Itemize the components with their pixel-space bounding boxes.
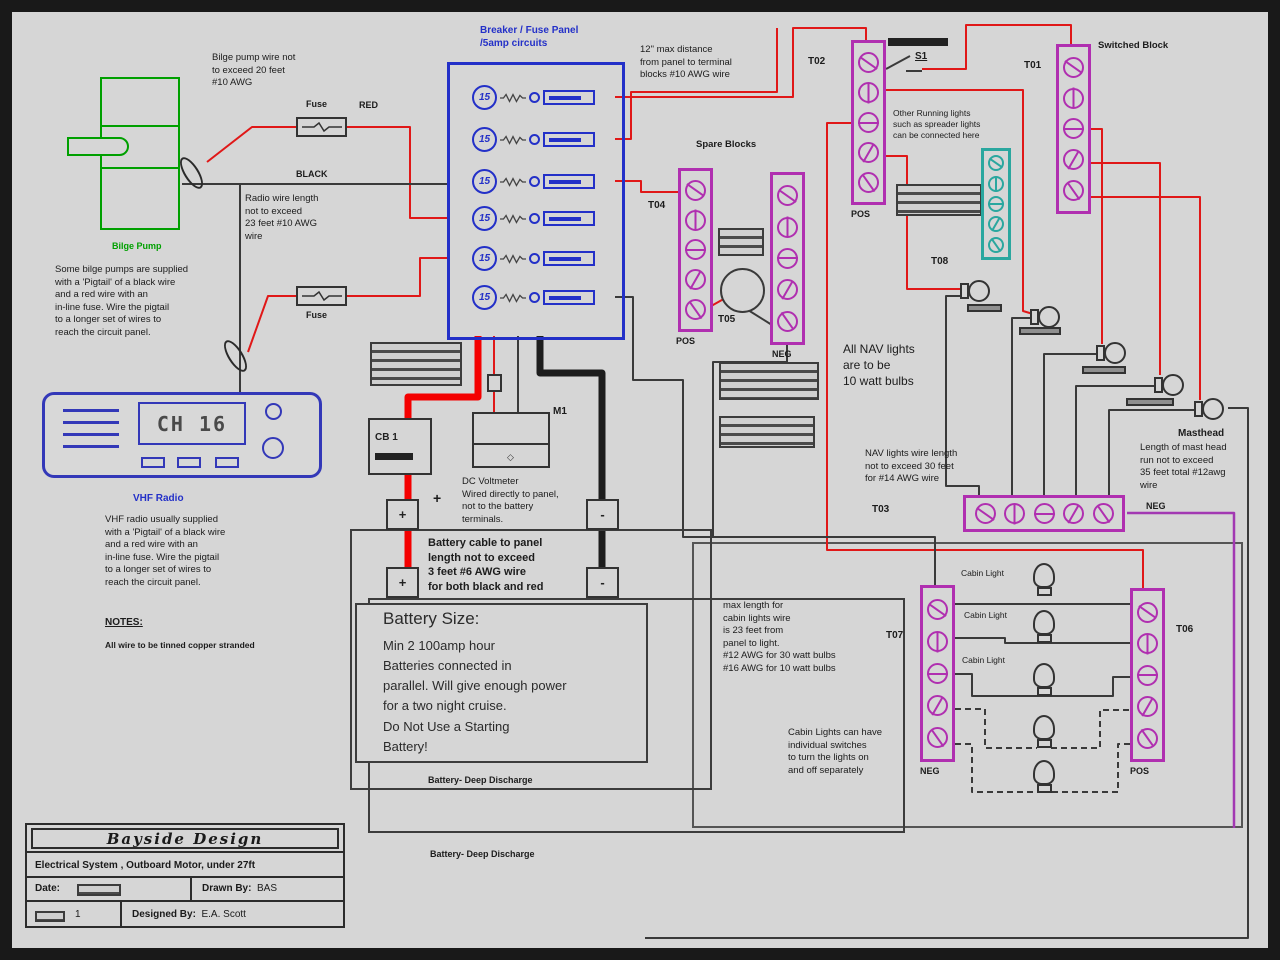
breaker-amp-rating: 15 — [472, 246, 497, 271]
terminal-screw-icon — [1063, 503, 1084, 524]
radio-button-icon[interactable] — [215, 457, 239, 468]
battery-pos-terminal: + — [386, 567, 419, 598]
cabin-light-label: Cabin Light — [962, 655, 1005, 666]
terminal-screw-icon — [927, 727, 948, 748]
breaker-coil-icon — [500, 92, 526, 104]
terminal-block-t02 — [851, 40, 886, 205]
breaker-coil-icon — [500, 134, 526, 146]
nav-light-plate-icon — [1082, 366, 1126, 374]
battery-pos-terminal: + — [386, 499, 419, 530]
terminal-screw-icon — [1063, 180, 1084, 201]
terminal-screw-icon — [1137, 602, 1158, 623]
t05-label: T05 — [718, 314, 735, 325]
panel-title: Breaker / Fuse Panel /5amp circuits — [480, 24, 578, 50]
terminal-block-t01 — [1056, 44, 1091, 214]
terminal-screw-icon — [1063, 118, 1084, 139]
terminal-screw-icon — [988, 216, 1004, 232]
breaker-circuit-row: 15 — [472, 168, 622, 195]
panel-distance-note: 12" max distance from panel to terminal … — [640, 44, 732, 82]
meter-divider — [474, 443, 548, 445]
panel-fuse-icon — [543, 290, 595, 305]
masthead-title: Masthead — [1178, 428, 1224, 439]
terminal-block-t07 — [920, 585, 955, 762]
compass-dial-icon — [720, 268, 765, 313]
terminal-screw-icon — [777, 248, 798, 269]
t04-label: T04 — [648, 200, 665, 211]
terminal-block-t06 — [1130, 588, 1165, 762]
voltmeter-m1: ◇ — [472, 412, 550, 468]
terminal-screw-icon — [988, 196, 1004, 212]
breaker-circuit-row: 15 — [472, 205, 622, 232]
pump-divider — [102, 125, 178, 127]
terminal-screw-icon — [858, 52, 879, 73]
fuse-top-label: Fuse — [306, 99, 327, 109]
radio-button-icon[interactable] — [177, 457, 201, 468]
drawn-by-cell: Drawn By: BAS — [190, 878, 347, 900]
breaker-coil-icon — [500, 292, 526, 304]
terminal-screw-icon — [927, 599, 948, 620]
connector-bundle-icon — [896, 184, 982, 216]
voltmeter-note: DC Voltmeter Wired directly to panel, no… — [462, 476, 559, 526]
cb1-bar-icon — [375, 453, 413, 460]
terminal-screw-icon — [685, 299, 706, 320]
breaker-circuit-row: 15 — [472, 126, 622, 153]
fuse-element-icon — [302, 290, 342, 302]
terminal-screw-icon — [1063, 57, 1084, 78]
breaker-amp-rating: 15 — [472, 285, 497, 310]
fuse-icon — [296, 286, 347, 306]
battery-cable-note: Battery cable to panel length not to exc… — [428, 536, 544, 594]
cabin-light-label: Cabin Light — [961, 568, 1004, 579]
pump-divider — [102, 167, 178, 169]
terminal-screw-icon — [858, 172, 879, 193]
terminal-screw-icon — [927, 663, 948, 684]
nav-wire-note: NAV lights wire length not to exceed 30 … — [865, 448, 957, 486]
spare-blocks-label: Spare Blocks — [696, 139, 756, 150]
cabin-wire-note: max length for cabin lights wire is 23 f… — [723, 600, 836, 675]
masthead-note: Length of mast head run not to exceed 35… — [1140, 442, 1227, 492]
terminal-block-t08 — [981, 148, 1011, 260]
terminal-screw-icon — [1137, 665, 1158, 686]
breaker-amp-rating: 15 — [472, 127, 497, 152]
red-wire-label: RED — [359, 100, 378, 110]
terminal-screw-icon — [777, 311, 798, 332]
fuse-icon — [296, 117, 347, 137]
nav-light-bulb-icon — [1096, 342, 1126, 364]
terminal-node-icon — [529, 92, 540, 103]
terminal-block-t04 — [678, 168, 713, 332]
nav-light-bulb-icon — [960, 280, 990, 302]
drawn-by-value: BAS — [257, 883, 277, 894]
date-field — [77, 884, 121, 896]
fuse-element-icon — [302, 121, 342, 133]
notes-body: All wire to be tinned copper stranded — [105, 640, 255, 651]
t06-label: T06 — [1176, 624, 1193, 635]
terminal-screw-icon — [858, 112, 879, 133]
terminal-screw-icon — [1004, 503, 1025, 524]
breaker-coil-icon — [500, 253, 526, 265]
t01-label: T01 — [1024, 60, 1041, 71]
panel-fuse-icon — [543, 174, 595, 189]
radio-wire-note: Radio wire length not to exceed 23 feet … — [245, 193, 318, 243]
cabin-light-bulb-icon — [1031, 760, 1057, 793]
radio-channel-display: CH 16 — [138, 402, 246, 445]
t02-pos-label: POS — [851, 209, 870, 219]
nav-light-plate-icon — [1126, 398, 1174, 406]
designed-by-cell: Designed By: E.A. Scott — [120, 902, 347, 928]
terminal-node-icon — [529, 253, 540, 264]
m1-label: M1 — [553, 406, 567, 417]
terminal-screw-icon — [975, 503, 996, 524]
breaker-coil-icon — [500, 176, 526, 188]
vhf-radio-graphic: CH 16 — [42, 392, 322, 478]
t07-neg-label: NEG — [920, 766, 940, 776]
nav-light-plate-icon — [1019, 327, 1061, 335]
terminal-screw-icon — [777, 217, 798, 238]
cabin-light-bulb-icon — [1031, 715, 1057, 748]
nav-light-plate-icon — [967, 304, 1002, 312]
bilge-wire-note: Bilge pump wire not to exceed 20 feet #1… — [212, 52, 295, 90]
cabin-switches-note: Cabin Lights can have individual switche… — [788, 727, 882, 777]
battery-type-label: Battery- Deep Discharge — [428, 775, 533, 785]
sheet-icon — [35, 911, 65, 922]
panel-fuse-icon — [543, 132, 595, 147]
cabin-light-bulb-icon — [1031, 610, 1057, 643]
nav-light-bulb-icon — [1030, 306, 1060, 328]
battery-type-label: Battery- Deep Discharge — [430, 849, 535, 859]
vhf-pigtail-note: VHF radio usually supplied with a 'Pigta… — [105, 514, 225, 589]
sheet-number: 1 — [75, 909, 81, 920]
terminal-block-spare-neg — [770, 172, 805, 345]
radio-knob-icon[interactable] — [265, 403, 282, 420]
date-label: Date: — [35, 883, 60, 894]
terminal-block-t03 — [963, 495, 1125, 532]
t08-label: T08 — [931, 256, 948, 267]
breaker-amp-rating: 15 — [472, 169, 497, 194]
designed-by-label: Designed By: — [132, 909, 196, 920]
speaker-line-icon — [63, 421, 119, 424]
terminal-screw-icon — [1137, 633, 1158, 654]
company-name: Bayside Design — [31, 828, 339, 849]
connector-bundle-icon — [719, 362, 819, 400]
breaker-circuit-row: 15 — [472, 245, 622, 272]
terminal-screw-icon — [685, 239, 706, 260]
meter-diamond-icon: ◇ — [507, 452, 514, 463]
cabin-light-bulb-icon — [1031, 563, 1057, 596]
terminal-screw-icon — [858, 142, 879, 163]
designed-by-value: E.A. Scott — [201, 909, 245, 920]
terminal-screw-icon — [988, 237, 1004, 253]
t04-pos-label: POS — [676, 336, 695, 346]
speaker-line-icon — [63, 445, 119, 448]
terminal-screw-icon — [927, 631, 948, 652]
terminal-screw-icon — [777, 279, 798, 300]
cabin-light-bulb-icon — [1031, 663, 1057, 696]
breaker-circuit-row: 15 — [472, 84, 622, 111]
terminal-node-icon — [529, 292, 540, 303]
connector-bundle-icon — [719, 416, 815, 448]
title-block: Bayside Design Electrical System , Outbo… — [25, 823, 345, 928]
terminal-screw-icon — [927, 695, 948, 716]
panel-fuse-icon — [543, 90, 595, 105]
terminal-node-icon — [529, 213, 540, 224]
bilge-pump-outlet — [67, 137, 129, 156]
radio-button-icon[interactable] — [141, 457, 165, 468]
s1-label: S1 — [915, 51, 927, 62]
circuit-breaker-cb1: CB 1 — [368, 418, 432, 475]
plus-sign: + — [433, 490, 441, 506]
switched-block-label: Switched Block — [1098, 40, 1168, 51]
terminal-screw-icon — [1137, 696, 1158, 717]
speaker-line-icon — [63, 433, 119, 436]
terminal-screw-icon — [1063, 149, 1084, 170]
terminal-screw-icon — [1034, 503, 1055, 524]
t03-neg-label: NEG — [1146, 501, 1166, 511]
running-lights-note: Other Running lights such as spreader li… — [893, 108, 980, 142]
nav-light-bulb-icon — [1154, 374, 1184, 396]
nav-bulbs-note: All NAV lights are to be 10 watt bulbs — [843, 342, 915, 389]
t07-label: T07 — [886, 630, 903, 641]
terminal-screw-icon — [685, 269, 706, 290]
cb1-label: CB 1 — [375, 432, 398, 443]
terminal-screw-icon — [1137, 728, 1158, 749]
breaker-coil-icon — [500, 213, 526, 225]
speaker-line-icon — [63, 409, 119, 412]
breaker-amp-rating: 15 — [472, 206, 497, 231]
battery-neg-terminal: - — [586, 567, 619, 598]
terminal-screw-icon — [777, 185, 798, 206]
drawn-by-label: Drawn By: — [202, 883, 251, 894]
terminal-screw-icon — [685, 180, 706, 201]
battery-size-title: Battery Size: — [383, 608, 479, 630]
title-block-row: Date: Drawn By: BAS — [27, 876, 343, 900]
bilge-pigtail-note: Some bilge pumps are supplied with a 'Pi… — [55, 264, 188, 339]
breaker-amp-rating: 15 — [472, 85, 497, 110]
terminal-screw-icon — [685, 210, 706, 231]
vhf-radio-label: VHF Radio — [133, 493, 184, 504]
terminal-screw-icon — [1063, 88, 1084, 109]
masthead-bulb-icon — [1194, 398, 1224, 420]
bilge-pump-label: Bilge Pump — [112, 241, 162, 251]
terminal-node-icon — [529, 176, 540, 187]
terminal-screw-icon — [1093, 503, 1114, 524]
panel-fuse-icon — [543, 251, 595, 266]
connector-bundle-icon — [718, 228, 764, 256]
t06-pos-label: POS — [1130, 766, 1149, 776]
battery-neg-terminal: - — [586, 499, 619, 530]
fuse-bottom-label: Fuse — [306, 310, 327, 320]
terminal-node-icon — [529, 134, 540, 145]
spare-neg-label: NEG — [772, 349, 792, 359]
terminal-screw-icon — [988, 155, 1004, 171]
cabin-light-label: Cabin Light — [964, 610, 1007, 621]
switch-bar-icon — [888, 38, 948, 46]
radio-knob-icon[interactable] — [262, 437, 284, 459]
wiring-diagram-canvas: Bilge Pump Bilge pump wire not to exceed… — [0, 0, 1280, 960]
terminal-screw-icon — [988, 176, 1004, 192]
notes-heading: NOTES: — [105, 617, 143, 628]
title-block-row: 1 Designed By: E.A. Scott — [27, 900, 343, 928]
breaker-circuit-row: 15 — [472, 284, 622, 311]
inline-fuse-icon — [487, 374, 502, 392]
panel-fuse-icon — [543, 211, 595, 226]
t03-label: T03 — [872, 504, 889, 515]
drawing-subtitle: Electrical System , Outboard Motor, unde… — [27, 851, 343, 876]
connector-bundle-icon — [370, 342, 462, 386]
black-wire-label: BLACK — [296, 169, 328, 179]
t02-label: T02 — [808, 56, 825, 67]
terminal-screw-icon — [858, 82, 879, 103]
battery-size-body: Min 2 100amp hour Batteries connected in… — [383, 636, 567, 757]
